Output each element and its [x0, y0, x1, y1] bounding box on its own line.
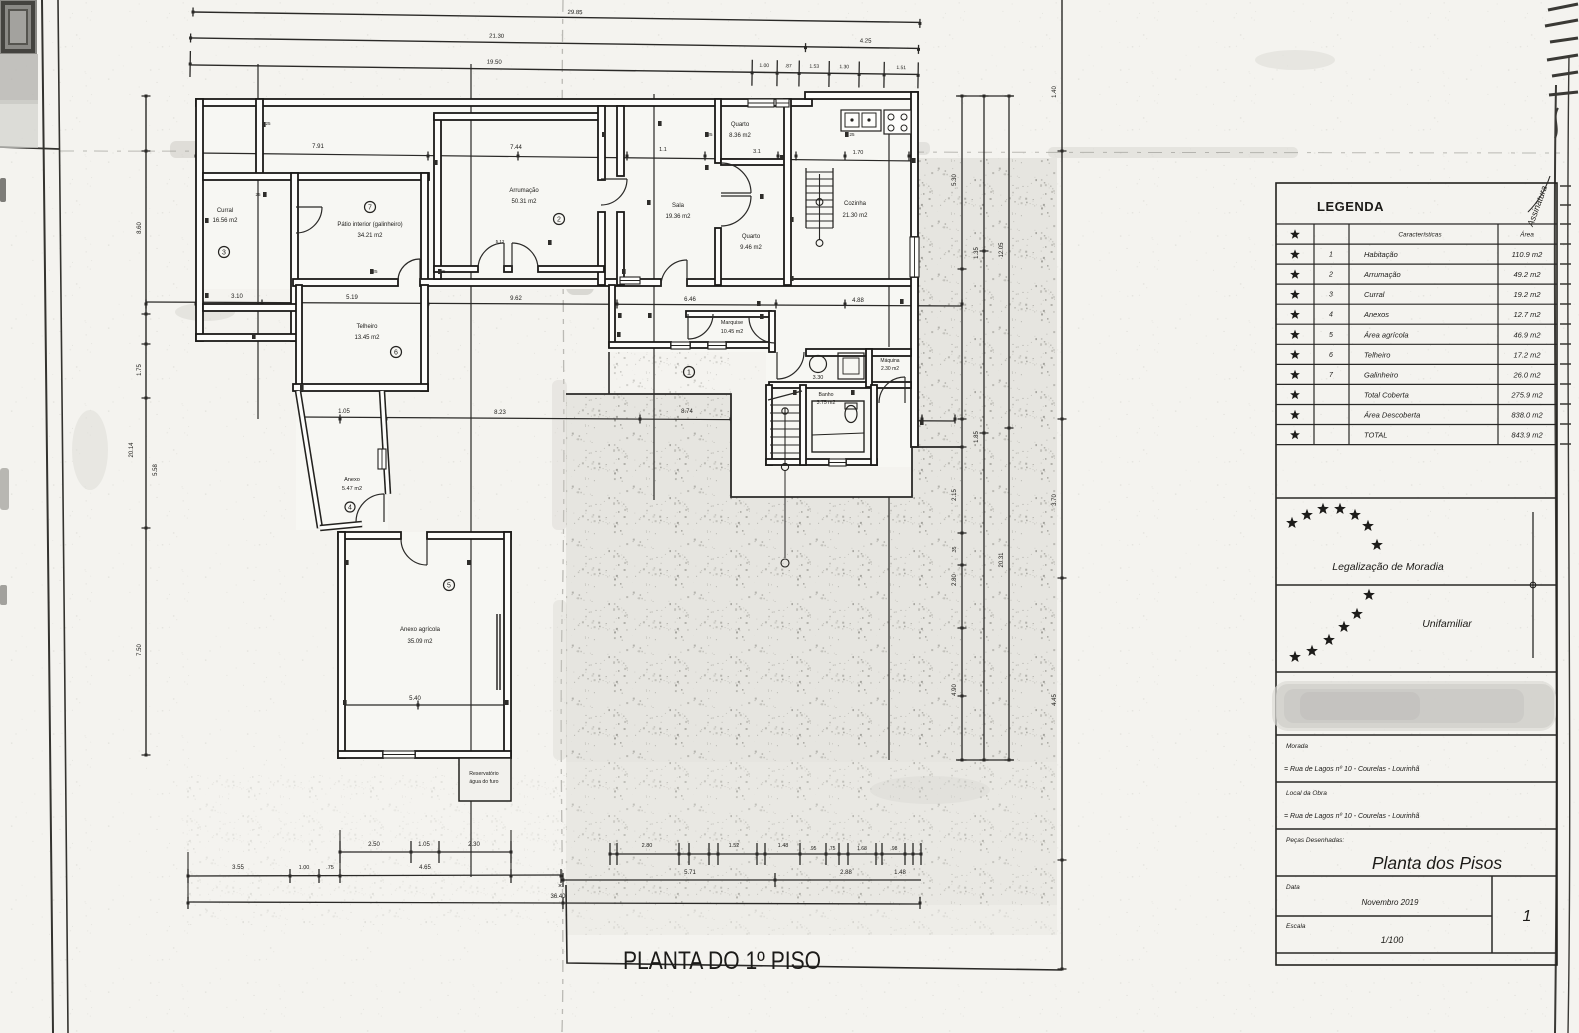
- svg-text:19.36 m2: 19.36 m2: [665, 214, 691, 220]
- svg-text:Morada: Morada: [1286, 743, 1308, 750]
- svg-text:1: 1: [687, 370, 691, 377]
- svg-text:7: 7: [368, 205, 372, 212]
- svg-text:Anexo: Anexo: [344, 477, 360, 483]
- svg-text:25: 25: [265, 121, 271, 126]
- svg-text:19.2 m2: 19.2 m2: [1513, 290, 1541, 299]
- svg-text:1.48: 1.48: [894, 870, 906, 876]
- svg-text:Data: Data: [1286, 884, 1300, 891]
- svg-text:4.45: 4.45: [1052, 694, 1058, 706]
- svg-text:5.40: 5.40: [409, 696, 421, 702]
- svg-text:838.0 m2: 838.0 m2: [1511, 410, 1543, 419]
- svg-text:34.21 m2: 34.21 m2: [357, 233, 383, 239]
- svg-text:2.30 m2: 2.30 m2: [881, 366, 899, 372]
- svg-text:5: 5: [447, 583, 451, 590]
- svg-text:1.52: 1.52: [729, 843, 740, 849]
- svg-text:Novembro 2019: Novembro 2019: [1362, 898, 1419, 907]
- svg-text:Características: Características: [1398, 232, 1442, 239]
- svg-text:2.15: 2.15: [952, 489, 958, 501]
- svg-text:9.62: 9.62: [510, 296, 522, 302]
- svg-text:13.45 m2: 13.45 m2: [354, 335, 380, 341]
- svg-text:2: 2: [1328, 272, 1333, 279]
- svg-text:19.50: 19.50: [487, 60, 503, 66]
- svg-text:5.30: 5.30: [952, 174, 958, 186]
- svg-text:1.53: 1.53: [809, 64, 819, 70]
- svg-text:Área agrícola: Área agrícola: [1363, 330, 1409, 339]
- svg-text:2.50: 2.50: [368, 842, 380, 848]
- svg-text:21.30: 21.30: [489, 34, 505, 40]
- svg-text:25: 25: [372, 269, 378, 274]
- svg-text:1.00: 1.00: [299, 865, 310, 871]
- svg-text:20.14: 20.14: [129, 442, 135, 458]
- svg-text:5.58: 5.58: [153, 464, 159, 476]
- svg-text:4.65: 4.65: [419, 865, 431, 871]
- svg-text:5.71: 5.71: [684, 870, 696, 876]
- svg-text:50.31 m2: 50.31 m2: [511, 199, 537, 205]
- svg-text:46.9 m2: 46.9 m2: [1513, 330, 1541, 339]
- svg-text:29.85: 29.85: [567, 10, 583, 16]
- svg-text:3: 3: [222, 250, 226, 257]
- svg-text:5.12: 5.12: [496, 239, 505, 244]
- svg-text:8.23: 8.23: [494, 410, 506, 416]
- svg-text:1/100: 1/100: [1381, 935, 1404, 945]
- svg-text:4.88: 4.88: [852, 298, 864, 304]
- svg-text:110.9 m2: 110.9 m2: [1512, 250, 1544, 259]
- svg-text:21.30 m2: 21.30 m2: [842, 213, 868, 219]
- svg-text:843.9 m2: 843.9 m2: [1511, 431, 1543, 440]
- svg-text:Habitação: Habitação: [1364, 250, 1398, 259]
- svg-text:PLANTA DO 1º PISO: PLANTA DO 1º PISO: [623, 947, 821, 975]
- svg-text:1.68: 1.68: [857, 846, 867, 852]
- svg-text:6: 6: [394, 350, 398, 357]
- svg-text:1.00: 1.00: [759, 63, 769, 69]
- svg-text:25: 25: [707, 132, 713, 137]
- svg-text:1.1: 1.1: [659, 147, 667, 153]
- svg-text:6: 6: [1329, 352, 1333, 359]
- svg-text:5.19: 5.19: [346, 295, 358, 301]
- svg-text:26.0 m2: 26.0 m2: [1512, 370, 1541, 379]
- svg-text:Planta dos Pisos: Planta dos Pisos: [1372, 853, 1503, 873]
- svg-text:.75: .75: [326, 865, 334, 871]
- svg-text:17.2 m2: 17.2 m2: [1513, 350, 1541, 359]
- svg-text:25: 25: [255, 192, 261, 197]
- svg-text:Quarto: Quarto: [742, 234, 761, 240]
- svg-text:Galinheiro: Galinheiro: [1364, 370, 1398, 379]
- svg-text:4: 4: [348, 505, 352, 512]
- svg-text:.98: .98: [891, 846, 898, 852]
- svg-text:Peças Desenhadas:: Peças Desenhadas:: [1286, 837, 1344, 844]
- svg-text:Máquina: Máquina: [880, 358, 899, 364]
- svg-text:7.44: 7.44: [510, 145, 522, 151]
- svg-text:Quarto: Quarto: [731, 122, 750, 128]
- svg-text:Local da Obra: Local da Obra: [1286, 790, 1327, 797]
- svg-text:.87: .87: [785, 63, 792, 69]
- svg-text:5.47 m2: 5.47 m2: [342, 486, 362, 492]
- svg-text:7.91: 7.91: [312, 144, 324, 150]
- svg-text:Anexo agrícola: Anexo agrícola: [400, 627, 441, 633]
- svg-text:Anexos: Anexos: [1363, 310, 1389, 319]
- svg-text:1.48: 1.48: [778, 843, 789, 849]
- svg-text:= Rua de Lagos nº 10 - Cou: = Rua de Lagos nº 10 - Courelas - Lourin…: [1284, 766, 1420, 773]
- svg-text:25: 25: [849, 132, 855, 137]
- svg-text:1.75: 1.75: [137, 364, 143, 376]
- svg-text:3.1: 3.1: [753, 149, 761, 155]
- svg-text:6.46: 6.46: [684, 297, 696, 303]
- svg-text:Área Descoberta: Área Descoberta: [1363, 410, 1420, 419]
- svg-text:Arrumação: Arrumação: [509, 188, 539, 194]
- svg-text:.95: .95: [810, 846, 817, 852]
- svg-text:4.25: 4.25: [860, 38, 872, 44]
- svg-text:2.88: 2.88: [840, 870, 852, 876]
- svg-text:3.70: 3.70: [1052, 494, 1058, 506]
- svg-text:1.40: 1.40: [1052, 86, 1058, 98]
- svg-text:8.36 m2: 8.36 m2: [729, 133, 751, 139]
- svg-text:20.31: 20.31: [999, 552, 1005, 568]
- svg-text:Telheiro: Telheiro: [356, 324, 378, 330]
- svg-text:2.80: 2.80: [952, 574, 958, 586]
- svg-text:.75: .75: [829, 846, 836, 852]
- svg-text:TOTAL: TOTAL: [1364, 431, 1387, 440]
- svg-text:3.75 m2: 3.75 m2: [817, 400, 836, 406]
- svg-text:2.80: 2.80: [642, 843, 653, 849]
- svg-text:Curral: Curral: [1364, 290, 1385, 299]
- svg-text:1.05: 1.05: [418, 842, 430, 848]
- svg-text:2: 2: [557, 217, 561, 224]
- svg-text:Arrumação: Arrumação: [1363, 270, 1401, 279]
- svg-text:Unifamiliar: Unifamiliar: [1422, 618, 1472, 630]
- svg-text:Curral: Curral: [217, 208, 233, 214]
- svg-text:8.74: 8.74: [681, 409, 693, 415]
- svg-text:Telheiro: Telheiro: [1364, 350, 1390, 359]
- svg-text:1: 1: [1329, 252, 1333, 259]
- svg-text:8.60: 8.60: [137, 222, 143, 234]
- svg-text:4: 4: [1329, 312, 1333, 319]
- svg-text:Marquise: Marquise: [721, 320, 743, 326]
- svg-text:10.45 m2: 10.45 m2: [721, 329, 743, 335]
- svg-text:275.9 m2: 275.9 m2: [1510, 390, 1543, 399]
- svg-text:3.30: 3.30: [813, 375, 824, 381]
- svg-text:12.05: 12.05: [999, 242, 1005, 258]
- svg-text:Pátio interior (galinheiro): Pátio interior (galinheiro): [337, 222, 402, 228]
- svg-text:3: 3: [1329, 292, 1333, 299]
- svg-text:49.2 m2: 49.2 m2: [1513, 270, 1541, 279]
- svg-text:12.7 m2: 12.7 m2: [1513, 310, 1541, 319]
- svg-text:Escala: Escala: [1286, 923, 1306, 930]
- svg-text:3.55: 3.55: [232, 865, 244, 871]
- svg-text:3.10: 3.10: [231, 294, 243, 300]
- svg-text:Área: Área: [1519, 230, 1534, 239]
- svg-text:Sala: Sala: [672, 203, 685, 209]
- svg-text:água do furo: água do furo: [469, 779, 498, 785]
- svg-text:1.05: 1.05: [338, 409, 350, 415]
- svg-text:= Rua de Lagos nº 10 - Cou: = Rua de Lagos nº 10 - Courelas - Lourin…: [1284, 813, 1420, 820]
- svg-text:Banho: Banho: [818, 392, 833, 398]
- svg-text:1.30: 1.30: [839, 64, 849, 70]
- svg-text:1.35: 1.35: [974, 247, 980, 259]
- svg-text:2.30: 2.30: [468, 842, 480, 848]
- svg-text:.35: .35: [952, 546, 958, 553]
- svg-text:1.51: 1.51: [896, 65, 906, 71]
- svg-text:LEGENDA: LEGENDA: [1317, 199, 1384, 214]
- svg-text:Cozinha: Cozinha: [844, 201, 867, 207]
- svg-text:Legalização de Moradia: Legalização de Moradia: [1332, 561, 1444, 573]
- svg-text:5: 5: [1329, 332, 1333, 339]
- svg-text:1.85: 1.85: [974, 431, 980, 443]
- svg-text:Total Coberta: Total Coberta: [1364, 390, 1409, 399]
- svg-text:1: 1: [1523, 908, 1532, 925]
- svg-text:1.70: 1.70: [853, 150, 864, 156]
- svg-text:35.09 m2: 35.09 m2: [407, 639, 433, 645]
- svg-text:36.40: 36.40: [550, 894, 566, 900]
- svg-text:9.46 m2: 9.46 m2: [740, 245, 762, 251]
- svg-text:4.90: 4.90: [952, 684, 958, 696]
- svg-text:×: ×: [558, 883, 562, 890]
- svg-text:7.50: 7.50: [137, 644, 143, 656]
- svg-text:Reservatório: Reservatório: [469, 771, 499, 777]
- svg-text:25: 25: [440, 269, 446, 274]
- svg-text:16.56 m2: 16.56 m2: [212, 218, 238, 224]
